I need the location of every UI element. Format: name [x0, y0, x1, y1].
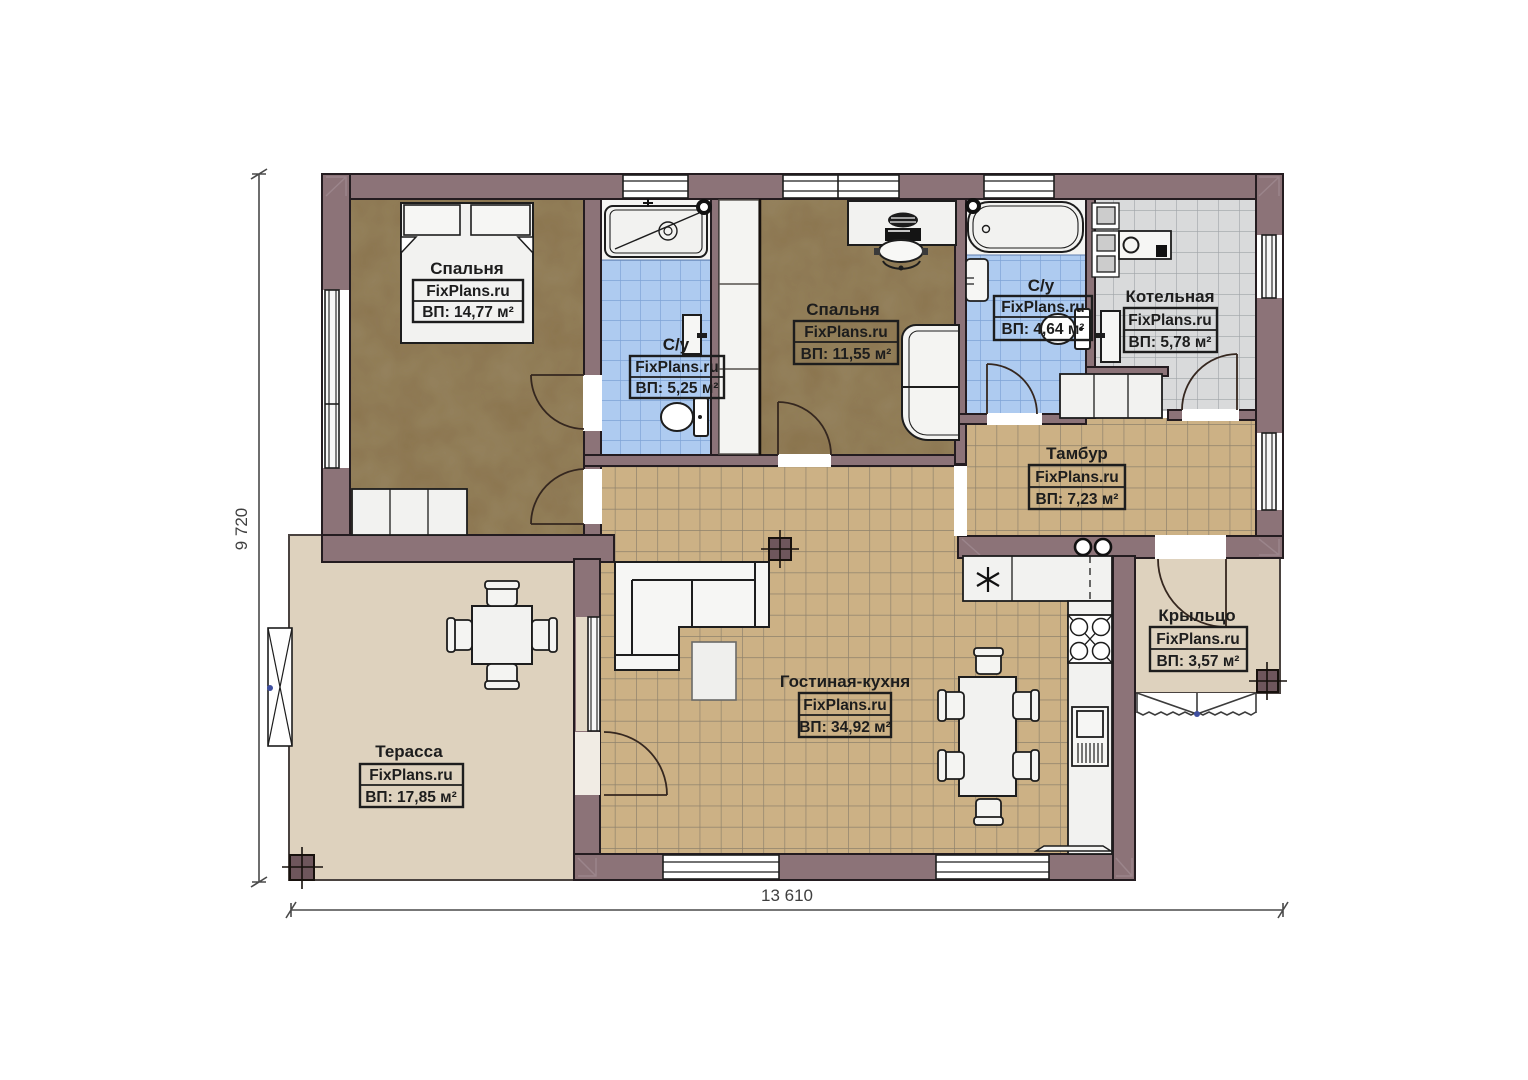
svg-text:FixPlans.ru: FixPlans.ru	[804, 324, 888, 341]
svg-text:FixPlans.ru: FixPlans.ru	[1128, 312, 1212, 329]
svg-text:ВП: 4,64 м²: ВП: 4,64 м²	[1002, 321, 1085, 338]
svg-text:С/у: С/у	[1028, 276, 1055, 295]
svg-text:ВП: 3,57 м²: ВП: 3,57 м²	[1157, 653, 1240, 670]
svg-text:Спальня: Спальня	[806, 300, 879, 319]
svg-text:Спальня: Спальня	[430, 259, 503, 278]
svg-text:FixPlans.ru: FixPlans.ru	[1156, 631, 1240, 648]
svg-text:ВП: 5,25 м²: ВП: 5,25 м²	[636, 380, 719, 397]
svg-text:Терасса: Терасса	[375, 742, 443, 761]
svg-text:FixPlans.ru: FixPlans.ru	[1035, 469, 1119, 486]
svg-text:9 720: 9 720	[232, 508, 251, 551]
svg-text:FixPlans.ru: FixPlans.ru	[369, 767, 453, 784]
svg-text:ВП: 17,85 м²: ВП: 17,85 м²	[365, 789, 457, 806]
svg-text:Котельная: Котельная	[1125, 287, 1214, 306]
svg-text:FixPlans.ru: FixPlans.ru	[635, 359, 719, 376]
svg-text:FixPlans.ru: FixPlans.ru	[1001, 299, 1085, 316]
svg-text:Тамбур: Тамбур	[1046, 444, 1108, 463]
svg-text:Гостиная-кухня: Гостиная-кухня	[780, 672, 910, 691]
svg-text:FixPlans.ru: FixPlans.ru	[426, 283, 510, 300]
svg-text:ВП: 5,78 м²: ВП: 5,78 м²	[1129, 334, 1212, 351]
svg-text:13 610: 13 610	[761, 886, 813, 905]
svg-text:Крыльцо: Крыльцо	[1158, 606, 1235, 625]
svg-text:FixPlans.ru: FixPlans.ru	[803, 697, 887, 714]
svg-text:ВП: 11,55 м²: ВП: 11,55 м²	[801, 346, 892, 363]
svg-text:ВП: 34,92 м²: ВП: 34,92 м²	[799, 719, 891, 736]
svg-text:ВП: 7,23 м²: ВП: 7,23 м²	[1036, 491, 1119, 508]
svg-text:ВП: 14,77 м²: ВП: 14,77 м²	[422, 304, 514, 321]
svg-text:С/у: С/у	[663, 335, 690, 354]
